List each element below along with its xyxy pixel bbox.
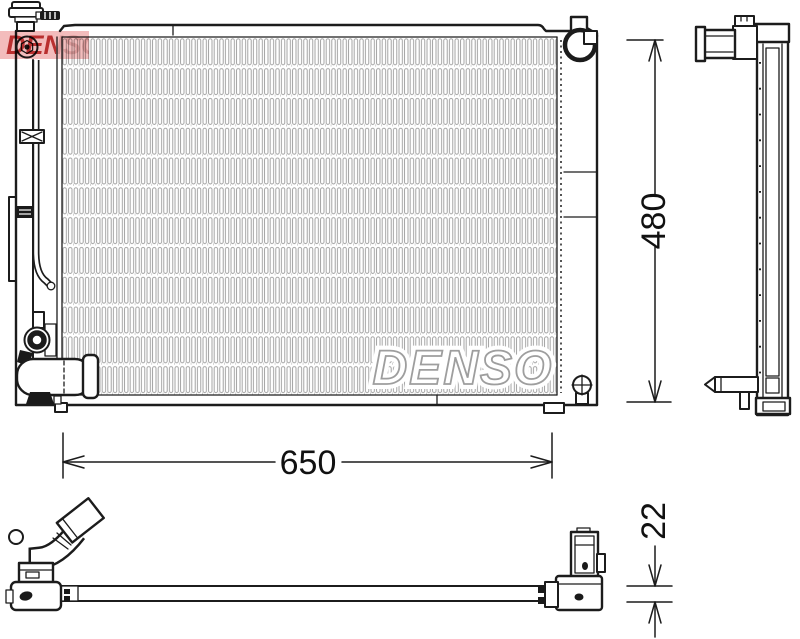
drain-plug — [572, 375, 592, 404]
denso-watermark: DENSO DENSO — [373, 342, 554, 395]
height-dimension-label: 480 — [635, 193, 673, 250]
side-mount-foot — [756, 398, 790, 414]
inlet-port — [565, 30, 597, 60]
bottom-mount-bracket — [538, 528, 605, 610]
radiator-front-view: DENSO DENSO — [9, 2, 597, 413]
radiator-bottom-view — [6, 498, 605, 610]
side-inlet-pipe — [696, 26, 757, 61]
radiator-side-view — [696, 16, 790, 415]
dimension-width-650: 650 — [63, 433, 552, 482]
denso-stamp: DENSO DENSO — [0, 30, 102, 60]
svg-text:DENSO: DENSO — [373, 342, 554, 395]
radiator-technical-drawing: DENSO DENSO 480 650 — [0, 0, 800, 639]
side-outlet-pipe — [705, 377, 758, 409]
depth-dimension-label: 22 — [635, 502, 673, 540]
lower-hose-connection — [17, 355, 98, 404]
overflow-tube — [36, 60, 55, 290]
dimension-height-480: 480 — [627, 40, 673, 402]
bottom-elbow-pipe — [6, 498, 104, 610]
bottom-band-connector — [60, 586, 78, 601]
width-dimension-label: 650 — [280, 444, 337, 482]
dimension-depth-22: 22 — [627, 502, 673, 637]
filler-cap — [9, 2, 60, 31]
